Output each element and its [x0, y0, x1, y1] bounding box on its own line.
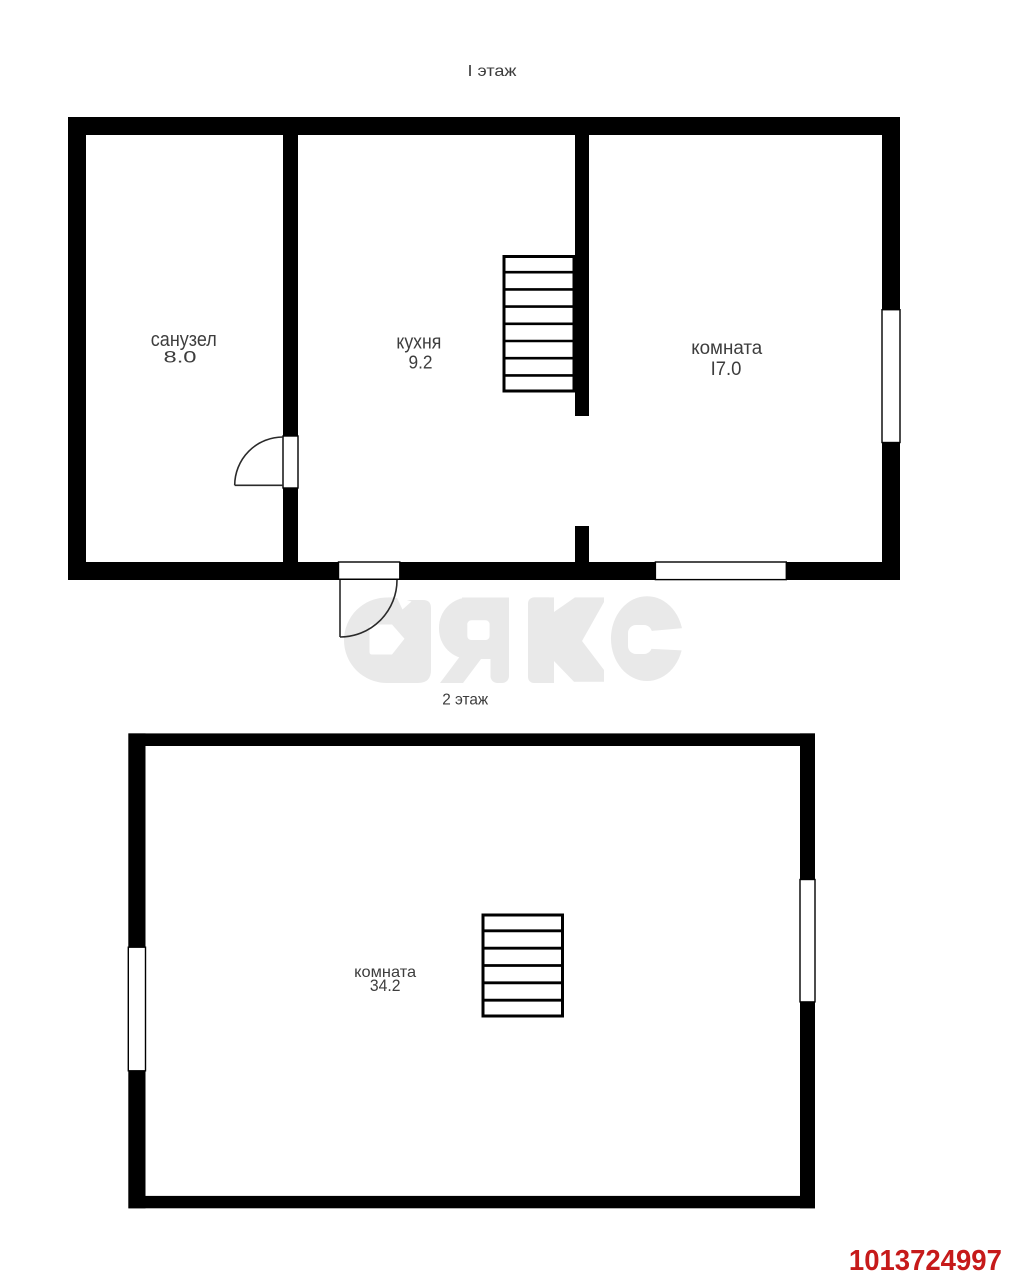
svg-text:8.0: 8.0	[164, 348, 197, 367]
svg-text:комната: комната	[691, 338, 762, 359]
svg-text:кухня: кухня	[396, 331, 441, 353]
svg-text:2 этаж: 2 этаж	[442, 692, 488, 709]
svg-text:34.2: 34.2	[370, 977, 401, 995]
svg-text:I7.0: I7.0	[711, 358, 742, 380]
svg-text:I этаж: I этаж	[468, 63, 517, 80]
svg-text:9.2: 9.2	[409, 353, 433, 373]
svg-text:1013724997: 1013724997	[849, 1245, 1002, 1277]
